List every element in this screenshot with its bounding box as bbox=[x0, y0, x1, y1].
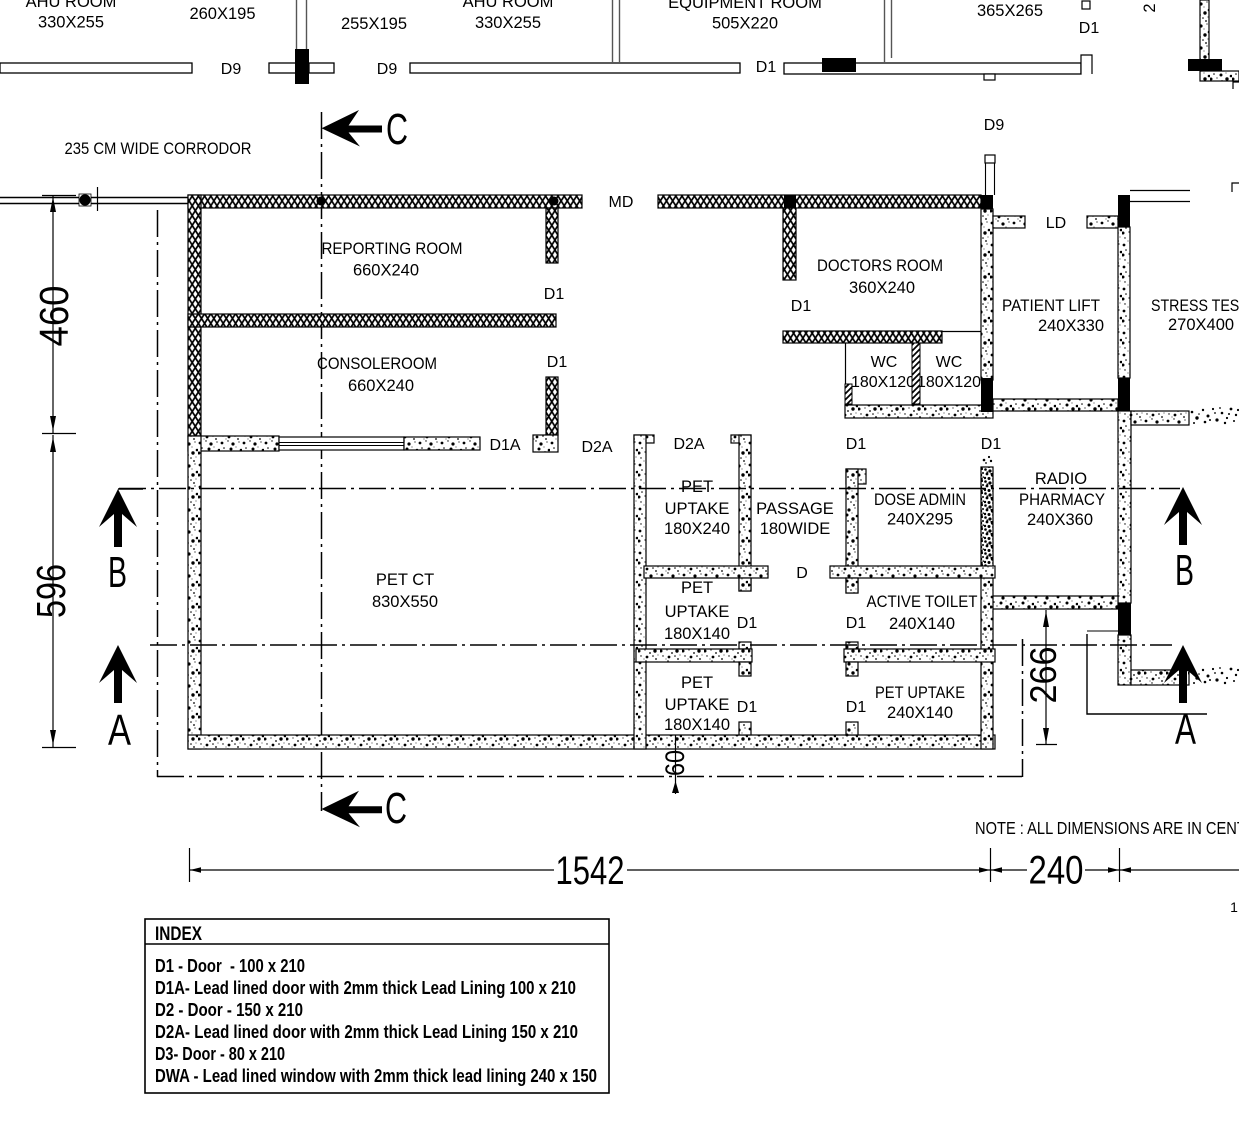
svg-text:D1: D1 bbox=[1079, 20, 1100, 37]
svg-text:REPORTING ROOM: REPORTING ROOM bbox=[322, 240, 463, 258]
svg-text:C: C bbox=[386, 105, 408, 154]
svg-text:AHU ROOM: AHU ROOM bbox=[463, 0, 554, 11]
svg-text:266: 266 bbox=[1023, 647, 1064, 704]
svg-text:DWA - Lead lined window with 2: DWA - Lead lined window with 2mm thick l… bbox=[155, 1066, 597, 1086]
svg-text:MD: MD bbox=[609, 194, 634, 211]
svg-text:1: 1 bbox=[1230, 899, 1238, 915]
svg-text:D1: D1 bbox=[846, 436, 867, 453]
svg-text:180X140: 180X140 bbox=[664, 716, 730, 734]
svg-text:D1: D1 bbox=[791, 298, 812, 315]
svg-text:240X360: 240X360 bbox=[1027, 511, 1093, 529]
svg-text:D2A- Lead lined door with 2mm: D2A- Lead lined door with 2mm thick Lead… bbox=[155, 1022, 578, 1042]
svg-text:270X400: 270X400 bbox=[1168, 316, 1234, 334]
svg-text:PET UPTAKE: PET UPTAKE bbox=[875, 684, 965, 702]
svg-text:180X120: 180X120 bbox=[851, 374, 915, 391]
svg-text:D1: D1 bbox=[547, 354, 568, 371]
svg-text:1542: 1542 bbox=[556, 849, 625, 893]
svg-text:PET: PET bbox=[681, 579, 713, 597]
svg-text:PATIENT LIFT: PATIENT LIFT bbox=[1002, 297, 1100, 315]
svg-text:A: A bbox=[108, 706, 132, 755]
svg-text:660X240: 660X240 bbox=[348, 377, 414, 395]
svg-text:330X255: 330X255 bbox=[38, 14, 104, 32]
svg-text:180WIDE: 180WIDE bbox=[760, 520, 831, 538]
svg-text:505X220: 505X220 bbox=[712, 15, 778, 33]
svg-text:240X330: 240X330 bbox=[1038, 317, 1104, 335]
svg-text:WC: WC bbox=[936, 354, 963, 371]
svg-text:D: D bbox=[796, 565, 808, 582]
svg-text:C: C bbox=[385, 784, 407, 833]
svg-text:DOCTORS ROOM: DOCTORS ROOM bbox=[817, 257, 943, 275]
svg-text:330X255: 330X255 bbox=[475, 14, 541, 32]
svg-text:D1: D1 bbox=[981, 436, 1002, 453]
svg-text:D1: D1 bbox=[846, 699, 867, 716]
svg-text:D2A: D2A bbox=[581, 439, 612, 456]
svg-text:D2 - Door - 150 x 210: D2 - Door - 150 x 210 bbox=[155, 1000, 303, 1020]
svg-text:255X195: 255X195 bbox=[341, 15, 407, 33]
svg-text:D1A: D1A bbox=[489, 437, 520, 454]
svg-text:NOTE : ALL DIMENSIONS ARE IN C: NOTE : ALL DIMENSIONS ARE IN CENTIMETERS bbox=[975, 818, 1239, 838]
svg-text:235 CM WIDE CORRODOR: 235 CM WIDE CORRODOR bbox=[65, 139, 252, 158]
svg-text:180X140: 180X140 bbox=[664, 625, 730, 643]
svg-text:PET: PET bbox=[681, 674, 713, 692]
svg-text:D1 - Door - 100 x 210: D1 - Door - 100 x 210 bbox=[155, 956, 305, 976]
svg-text:D9: D9 bbox=[984, 117, 1005, 134]
svg-text:60: 60 bbox=[660, 750, 690, 776]
svg-text:ACTIVE TOILET: ACTIVE TOILET bbox=[867, 593, 978, 611]
svg-text:D9: D9 bbox=[221, 61, 242, 78]
svg-text:360X240: 360X240 bbox=[849, 279, 915, 297]
svg-text:UPTAKE: UPTAKE bbox=[665, 696, 730, 714]
svg-text:365X265: 365X265 bbox=[977, 2, 1043, 20]
svg-text:PET CT: PET CT bbox=[376, 571, 434, 589]
svg-text:D1: D1 bbox=[544, 286, 565, 303]
svg-text:D1: D1 bbox=[737, 699, 758, 716]
svg-text:D1: D1 bbox=[756, 59, 777, 76]
svg-text:INDEX: INDEX bbox=[155, 924, 202, 945]
svg-text:180X120: 180X120 bbox=[917, 374, 981, 391]
svg-text:B: B bbox=[108, 548, 127, 597]
svg-text:240X295: 240X295 bbox=[887, 511, 953, 529]
svg-text:596: 596 bbox=[28, 564, 74, 618]
svg-text:460: 460 bbox=[31, 286, 77, 347]
svg-text:D1: D1 bbox=[737, 615, 758, 632]
svg-text:WC: WC bbox=[871, 354, 898, 371]
svg-text:B: B bbox=[1175, 546, 1194, 595]
svg-text:260X195: 260X195 bbox=[189, 5, 255, 23]
svg-text:DOSE ADMIN: DOSE ADMIN bbox=[874, 491, 966, 509]
svg-text:830X550: 830X550 bbox=[372, 593, 438, 611]
svg-text:PET: PET bbox=[681, 478, 713, 496]
svg-text:EQUIPMENT ROOM: EQUIPMENT ROOM bbox=[668, 0, 822, 12]
svg-text:D1A- Lead lined door with 2mm: D1A- Lead lined door with 2mm thick Lead… bbox=[155, 978, 576, 998]
svg-text:D9: D9 bbox=[377, 61, 398, 78]
svg-text:D2A: D2A bbox=[673, 436, 704, 453]
svg-text:RADIO: RADIO bbox=[1035, 470, 1087, 488]
svg-text:PASSAGE: PASSAGE bbox=[756, 500, 834, 518]
svg-text:CONSOLEROOM: CONSOLEROOM bbox=[317, 355, 437, 373]
svg-text:LD: LD bbox=[1046, 215, 1066, 232]
svg-text:UPTAKE: UPTAKE bbox=[665, 500, 730, 518]
svg-text:660X240: 660X240 bbox=[353, 262, 419, 280]
svg-text:UPTAKE: UPTAKE bbox=[665, 603, 730, 621]
svg-text:240X140: 240X140 bbox=[889, 615, 955, 633]
svg-text:D3- Door - 80 x 210: D3- Door - 80 x 210 bbox=[155, 1044, 285, 1064]
svg-text:PHARMACY: PHARMACY bbox=[1019, 491, 1105, 509]
svg-text:2: 2 bbox=[1141, 3, 1159, 12]
svg-text:AHU ROOM: AHU ROOM bbox=[26, 0, 117, 11]
svg-text:A: A bbox=[1175, 705, 1196, 754]
svg-text:D1: D1 bbox=[846, 615, 867, 632]
svg-text:STRESS TEST: STRESS TEST bbox=[1151, 297, 1239, 315]
svg-text:180X240: 180X240 bbox=[664, 520, 730, 538]
svg-text:240X140: 240X140 bbox=[887, 704, 953, 722]
svg-text:240: 240 bbox=[1029, 849, 1084, 893]
